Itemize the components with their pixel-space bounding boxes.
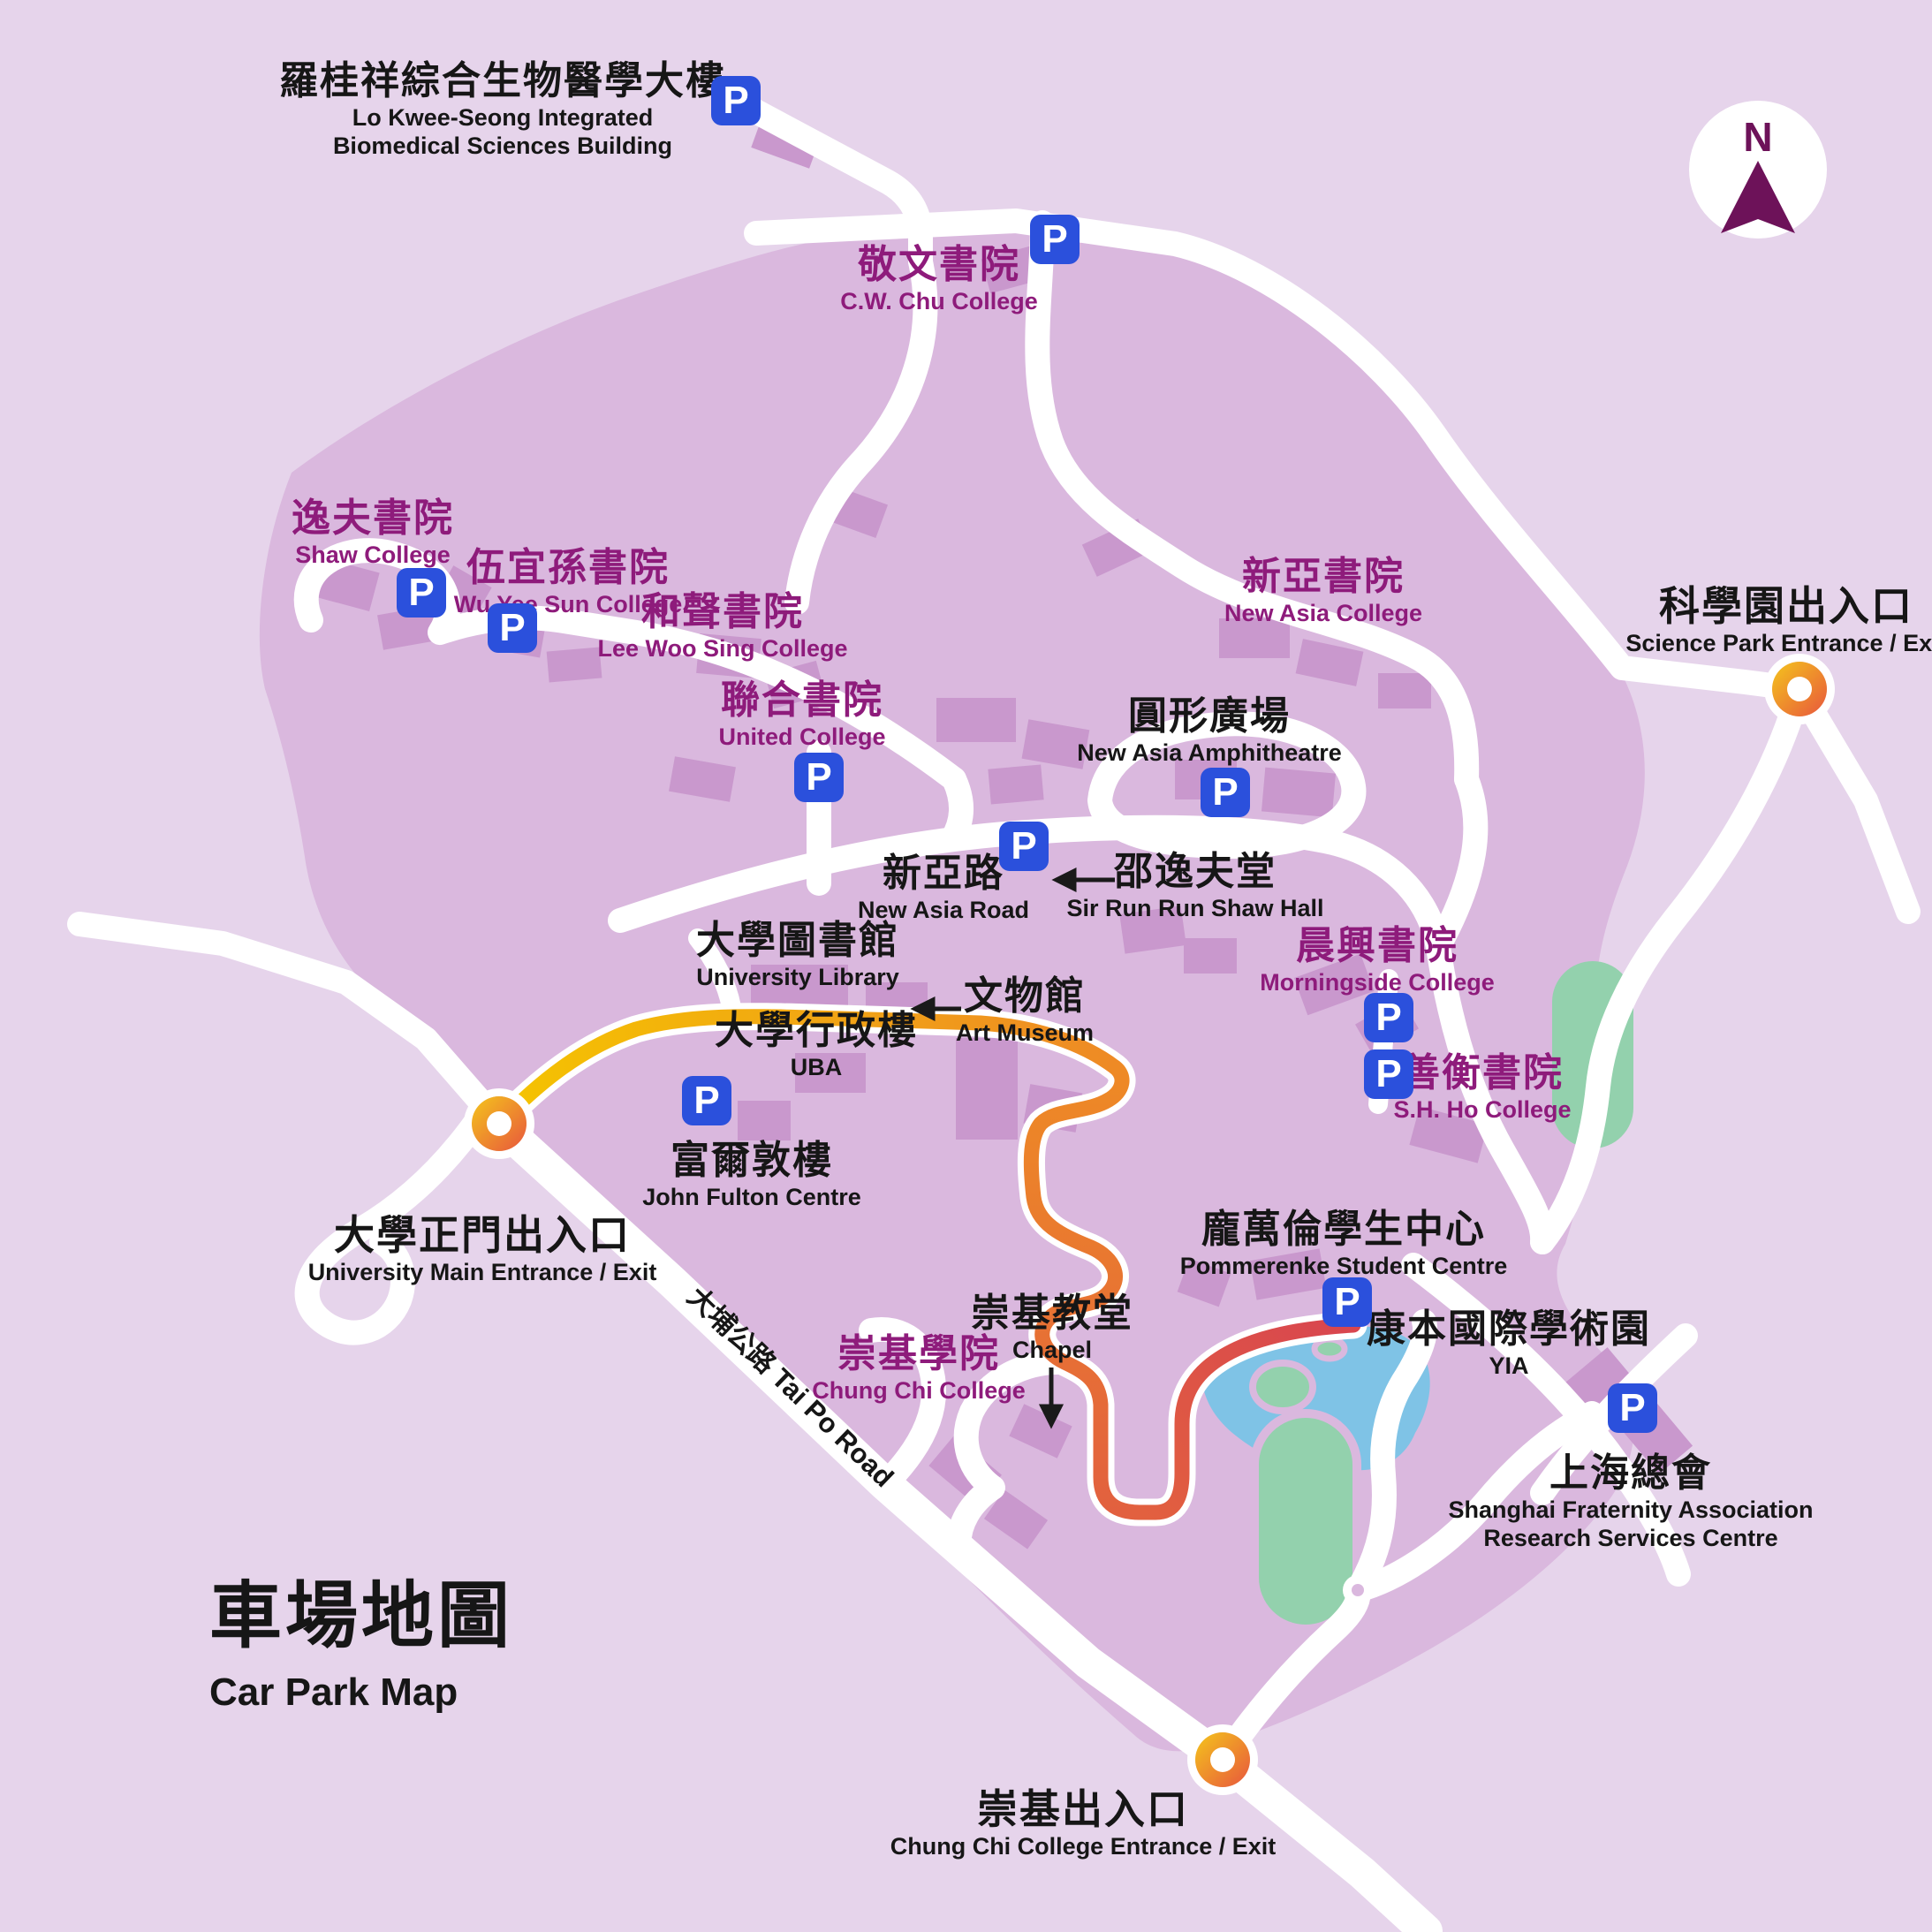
- label-chung-chi-college: 崇基學院 Chung Chi College: [812, 1331, 1025, 1405]
- label-library: 大學圖書館 University Library: [696, 918, 899, 992]
- label-united: 聯合書院 United College: [718, 678, 885, 752]
- compass: N: [1689, 101, 1827, 239]
- sports-field-south: [1254, 1413, 1357, 1629]
- label-morningside: 晨興書院 Morningside College: [1260, 923, 1495, 997]
- label-pommerenke: 龐萬倫學生中心 Pommerenke Student Centre: [1180, 1207, 1508, 1281]
- parking-icon-john-fulton: P: [682, 1076, 731, 1125]
- label-yia: 康本國際學術園 YIA: [1367, 1307, 1651, 1381]
- parking-icon-wu-yee-sun: P: [488, 603, 537, 653]
- label-sir-run-run-shaw: 邵逸夫堂 Sir Run Run Shaw Hall: [1066, 849, 1323, 923]
- parking-icon-lo-kwee-seong: P: [711, 76, 761, 125]
- entrance-marker-science-park: [1772, 662, 1827, 716]
- label-new-asia: 新亞書院 New Asia College: [1224, 554, 1422, 628]
- label-sh-ho: 善衡書院 S.H. Ho College: [1393, 1050, 1571, 1125]
- parking-icon-amphitheatre: P: [1201, 768, 1250, 817]
- label-john-fulton: 富爾敦樓 John Fulton Centre: [642, 1138, 860, 1212]
- label-science-park-entrance: 科學園出入口 Science Park Entrance / Exit: [1625, 582, 1932, 658]
- label-cw-chu: 敬文書院 C.W. Chu College: [840, 242, 1038, 316]
- parking-icon-shanghai: P: [1608, 1383, 1657, 1433]
- label-art-museum: 文物館 Art Museum: [956, 974, 1094, 1048]
- parking-icon-pommerenke: P: [1322, 1277, 1372, 1327]
- map-title-zh: 車場地圖: [209, 1557, 513, 1662]
- label-main-entrance: 大學正門出入口 University Main Entrance / Exit: [308, 1211, 657, 1287]
- lake-island-small: [1315, 1339, 1345, 1359]
- entrance-marker-main: [472, 1096, 527, 1151]
- entrance-marker-chung-chi: [1195, 1732, 1250, 1787]
- label-chung-chi-entrance: 崇基出入口 Chung Chi College Entrance / Exit: [890, 1785, 1277, 1861]
- road-node-center: [1352, 1584, 1364, 1596]
- label-shanghai: 上海總會 Shanghai Fraternity Association Res…: [1448, 1451, 1813, 1553]
- car-park-map: N P P P P P P P P P P P P 羅桂祥綜合生物醫學大樓 Lo…: [0, 0, 1932, 1932]
- label-shaw: 逸夫書院 Shaw College: [292, 496, 454, 570]
- label-lo-kwee-seong: 羅桂祥綜合生物醫學大樓 Lo Kwee-Seong Integrated Bio…: [279, 58, 726, 161]
- label-uba: 大學行政樓 UBA: [715, 1008, 918, 1082]
- parking-icon-cw-chu: P: [1030, 215, 1080, 264]
- parking-icon-united: P: [794, 753, 844, 802]
- north-arrow-icon: [1719, 161, 1797, 235]
- map-title-en: Car Park Map: [209, 1671, 513, 1715]
- parking-icon-morningside: P: [1364, 993, 1413, 1042]
- map-title: 車場地圖 Car Park Map: [209, 1557, 513, 1715]
- parking-icon-new-asia-road: P: [999, 822, 1049, 871]
- label-lee-woo-sing: 和聲書院 Lee Woo Sing College: [597, 589, 847, 663]
- lake-island: [1253, 1363, 1313, 1411]
- parking-icon-shaw: P: [397, 568, 446, 617]
- compass-n-label: N: [1743, 117, 1772, 157]
- parking-icon-sh-ho: P: [1364, 1049, 1413, 1099]
- label-amphitheatre: 圓形廣場 New Asia Amphitheatre: [1077, 693, 1342, 768]
